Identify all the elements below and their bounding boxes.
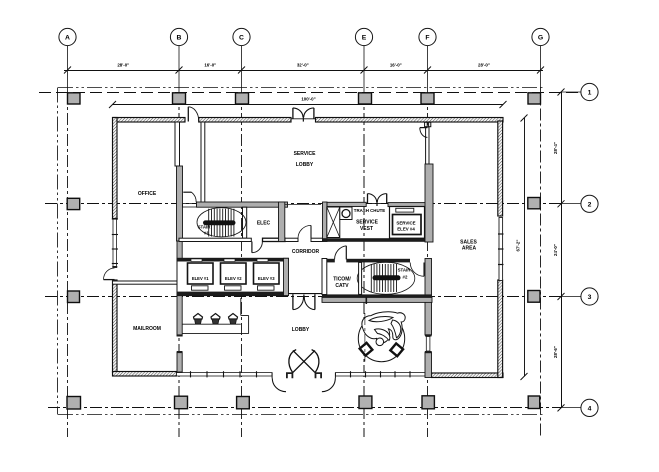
svg-text:#2: #2 — [403, 275, 408, 280]
svg-text:28'-0": 28'-0" — [478, 63, 490, 68]
svg-text:B: B — [177, 35, 182, 42]
svg-text:STAIR: STAIR — [398, 268, 412, 273]
svg-text:32'-0": 32'-0" — [297, 63, 309, 68]
svg-text:F: F — [425, 35, 429, 42]
svg-text:SERVICE: SERVICE — [396, 221, 415, 226]
svg-text:VEST: VEST — [360, 226, 373, 232]
svg-text:C: C — [239, 35, 244, 42]
svg-text:28'-6": 28'-6" — [553, 346, 558, 358]
svg-text:3: 3 — [588, 294, 592, 301]
svg-text:16'-0": 16'-0" — [204, 63, 216, 68]
svg-text:STAIR: STAIR — [198, 225, 212, 230]
svg-text:28'-0": 28'-0" — [117, 63, 129, 68]
svg-text:24'-0": 24'-0" — [553, 244, 558, 256]
svg-text:2: 2 — [588, 201, 592, 208]
svg-text:ELEV #1: ELEV #1 — [192, 276, 209, 281]
svg-text:SERVICE: SERVICE — [356, 220, 379, 226]
svg-text:67'-2": 67'-2" — [516, 240, 521, 252]
svg-text:28'-4": 28'-4" — [553, 142, 558, 154]
svg-text:OFFICE: OFFICE — [138, 191, 157, 197]
svg-text:MAILROOM: MAILROOM — [133, 326, 161, 332]
svg-text:LOBBY: LOBBY — [296, 162, 314, 168]
svg-text:100'-0": 100'-0" — [301, 97, 315, 102]
svg-text:4: 4 — [588, 405, 592, 412]
svg-text:E: E — [362, 35, 367, 42]
svg-text:16'-0": 16'-0" — [390, 63, 402, 68]
svg-text:ELEV #4: ELEV #4 — [397, 227, 415, 232]
svg-text:ELEC: ELEC — [257, 221, 271, 227]
svg-text:ELEV #2: ELEV #2 — [225, 276, 242, 281]
svg-text:SERVICE: SERVICE — [294, 151, 317, 157]
svg-text:AREA: AREA — [462, 246, 477, 252]
svg-text:TICOM/: TICOM/ — [333, 277, 351, 283]
svg-text:TRASH CHUTE: TRASH CHUTE — [354, 208, 386, 213]
svg-text:LOBBY: LOBBY — [292, 327, 310, 333]
svg-text:ELEV #3: ELEV #3 — [258, 276, 275, 281]
svg-text:#1: #1 — [204, 231, 209, 236]
svg-text:G: G — [538, 35, 543, 42]
svg-text:1: 1 — [588, 90, 592, 97]
svg-text:CATV: CATV — [335, 283, 349, 289]
svg-text:CORRIDOR: CORRIDOR — [292, 249, 320, 255]
svg-text:A: A — [65, 35, 70, 42]
